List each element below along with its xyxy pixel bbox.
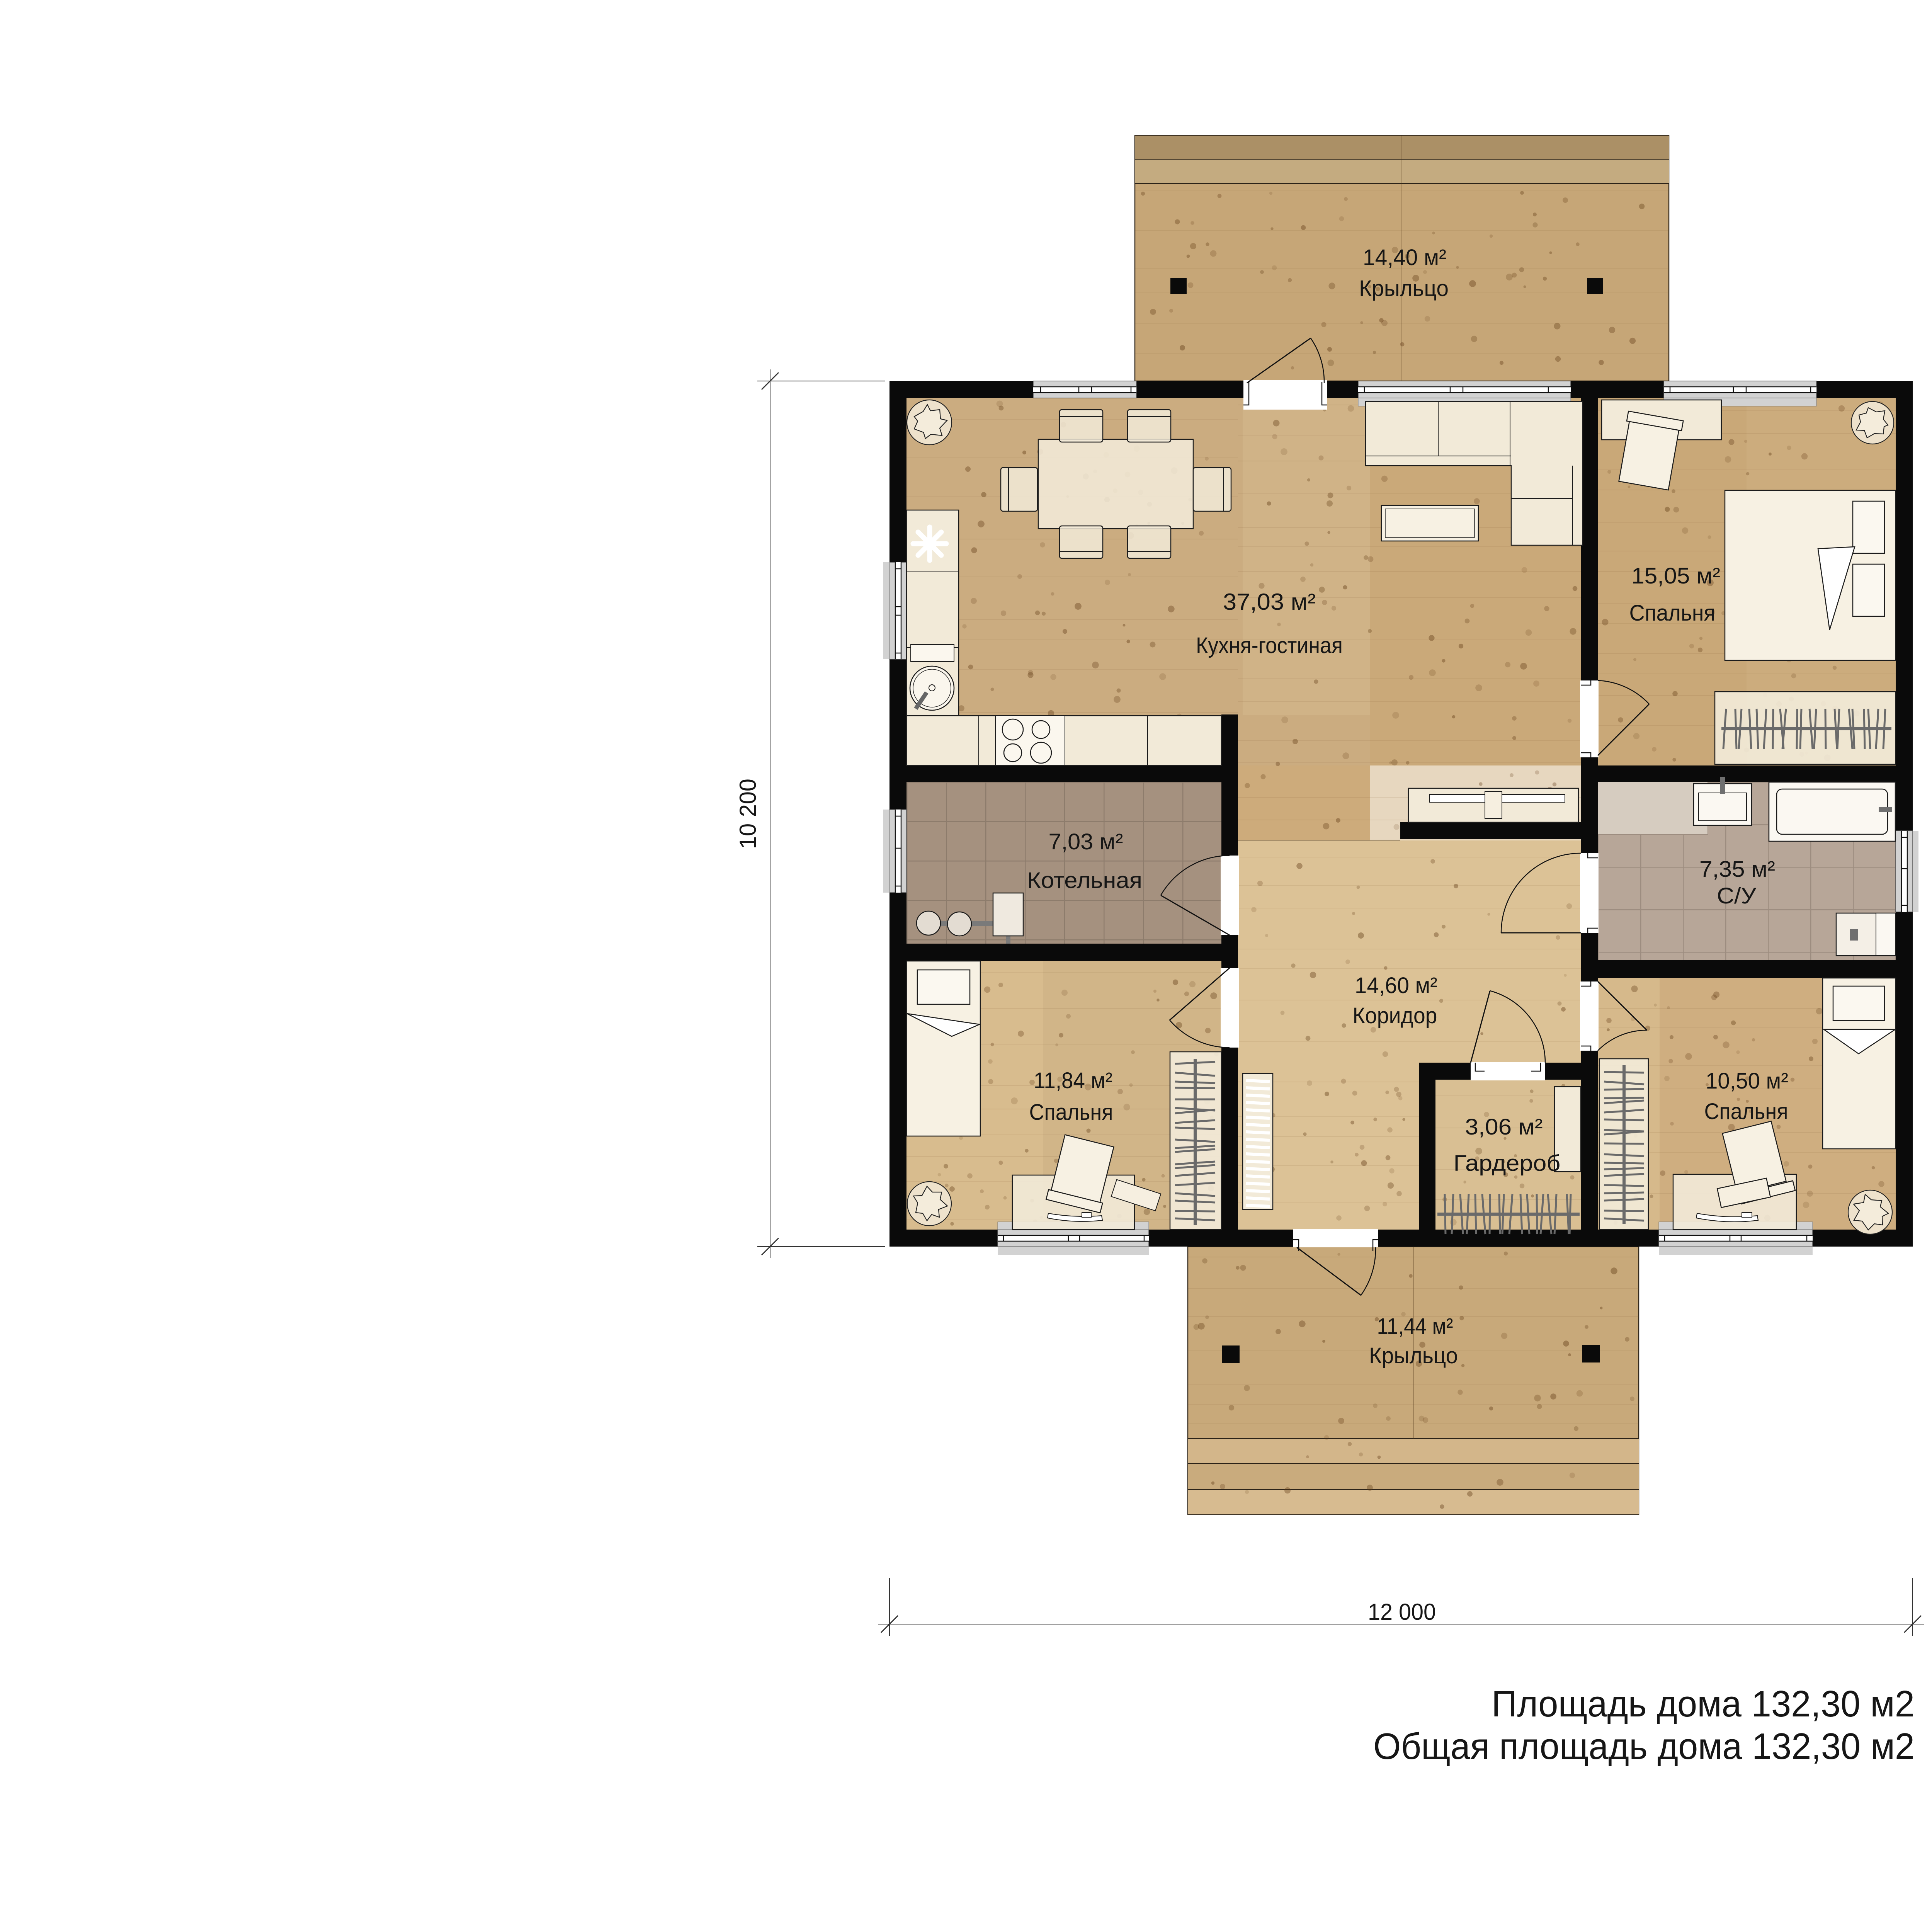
svg-text:Общая площадь дома 132,30 м2: Общая площадь дома 132,30 м2 (1373, 1726, 1915, 1767)
svg-text:Гардероб: Гардероб (1454, 1151, 1561, 1176)
svg-text:11,44 м²: 11,44 м² (1377, 1314, 1453, 1339)
svg-text:37,03 м²: 37,03 м² (1223, 589, 1316, 615)
svg-text:15,05 м²: 15,05 м² (1631, 563, 1720, 589)
svg-text:Котельная: Котельная (1027, 868, 1142, 893)
svg-text:Спальня: Спальня (1704, 1099, 1788, 1124)
svg-text:14,60 м²: 14,60 м² (1355, 973, 1437, 998)
svg-text:10 200: 10 200 (735, 779, 761, 849)
svg-text:Спальня: Спальня (1629, 600, 1716, 626)
svg-text:Крыльцо: Крыльцо (1369, 1343, 1458, 1368)
svg-text:Коридор: Коридор (1353, 1003, 1437, 1028)
svg-text:3,06 м²: 3,06 м² (1465, 1114, 1543, 1140)
svg-text:С/У: С/У (1717, 883, 1757, 908)
svg-text:12 000: 12 000 (1368, 1599, 1436, 1625)
svg-text:10,50 м²: 10,50 м² (1706, 1068, 1788, 1094)
svg-text:Площадь дома 132,30 м2: Площадь дома 132,30 м2 (1492, 1683, 1915, 1725)
svg-text:14,40 м²: 14,40 м² (1363, 245, 1446, 270)
svg-text:7,35 м²: 7,35 м² (1699, 857, 1775, 882)
svg-text:11,84 м²: 11,84 м² (1034, 1068, 1112, 1093)
svg-text:Кухня-гостиная: Кухня-гостиная (1196, 633, 1343, 658)
svg-text:Спальня: Спальня (1029, 1100, 1113, 1125)
svg-text:Крыльцо: Крыльцо (1359, 276, 1449, 301)
svg-text:7,03 м²: 7,03 м² (1049, 829, 1123, 854)
